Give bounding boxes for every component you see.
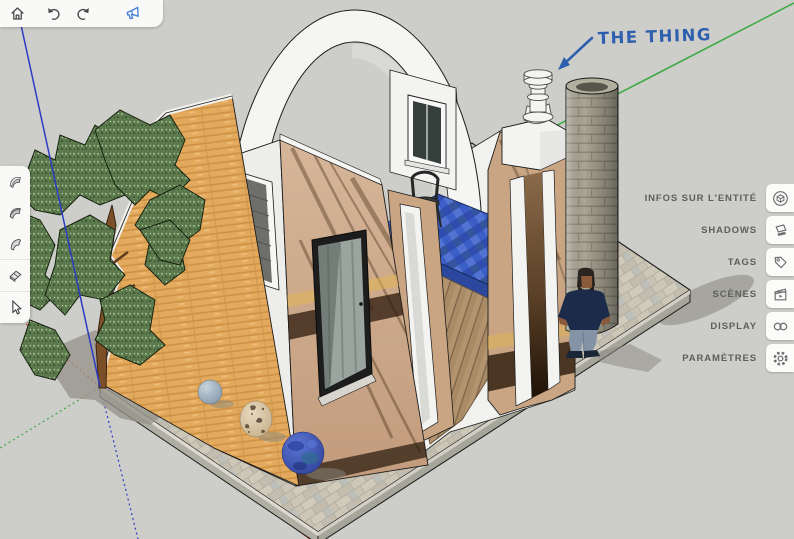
annotation-text: THE THING: [597, 25, 712, 48]
undo-icon: [45, 5, 62, 22]
surface-tool-2[interactable]: [0, 197, 30, 228]
panel-item-scenes[interactable]: SCÈNES: [645, 280, 794, 308]
entity-info-button[interactable]: [766, 184, 794, 212]
tag-icon: [772, 254, 789, 271]
feedback-button[interactable]: [120, 2, 146, 26]
entity-info-icon: [772, 190, 789, 207]
tags-label: TAGS: [728, 257, 757, 268]
home-icon: [9, 5, 26, 22]
settings-label: PARAMÈTRES: [682, 353, 757, 364]
display-icon: [772, 318, 789, 335]
panel-item-tags[interactable]: TAGS: [645, 248, 794, 276]
settings-gear-icon: [772, 350, 789, 367]
feedback-megaphone-icon: [124, 5, 142, 22]
window[interactable]: [405, 95, 449, 174]
panel-item-display[interactable]: DISPLAY: [645, 312, 794, 340]
settings-button[interactable]: [766, 344, 794, 372]
shadows-label: SHADOWS: [701, 225, 757, 236]
surface-tool-3-icon: [7, 235, 24, 252]
surface-tool-2-icon: [7, 204, 24, 221]
undo-button[interactable]: [40, 2, 66, 26]
scenes-button[interactable]: [766, 280, 794, 308]
select-tool[interactable]: [0, 291, 30, 323]
tags-button[interactable]: [766, 248, 794, 276]
surface-tool-3[interactable]: [0, 228, 30, 259]
right-panel: INFOS SUR L'ENTITÉ SHADOWS TAGS SCÈ: [645, 184, 794, 372]
surface-tool-1[interactable]: [0, 166, 30, 197]
portal[interactable]: [486, 132, 578, 415]
home-button[interactable]: [4, 2, 30, 26]
shadows-icon: [772, 222, 789, 239]
scenes-label: SCÈNES: [713, 289, 757, 300]
app-window: THE THING: [0, 0, 794, 539]
display-label: DISPLAY: [710, 321, 757, 332]
display-button[interactable]: [766, 312, 794, 340]
panel-item-entity-info[interactable]: INFOS SUR L'ENTITÉ: [645, 184, 794, 212]
panel-item-settings[interactable]: PARAMÈTRES: [645, 344, 794, 372]
top-toolbar: [0, 0, 163, 27]
redo-button[interactable]: [70, 2, 96, 26]
surface-tool-1-icon: [7, 173, 24, 190]
entity-info-label: INFOS SUR L'ENTITÉ: [645, 193, 757, 204]
redo-icon: [75, 5, 92, 22]
select-arrow-icon: [7, 299, 24, 316]
glass-door[interactable]: [312, 230, 376, 406]
eraser-icon: [7, 267, 24, 284]
panel-item-shadows[interactable]: SHADOWS: [645, 216, 794, 244]
eraser-tool[interactable]: [0, 259, 30, 291]
scenes-icon: [772, 286, 789, 303]
shadows-button[interactable]: [766, 216, 794, 244]
left-toolbar: [0, 166, 30, 323]
